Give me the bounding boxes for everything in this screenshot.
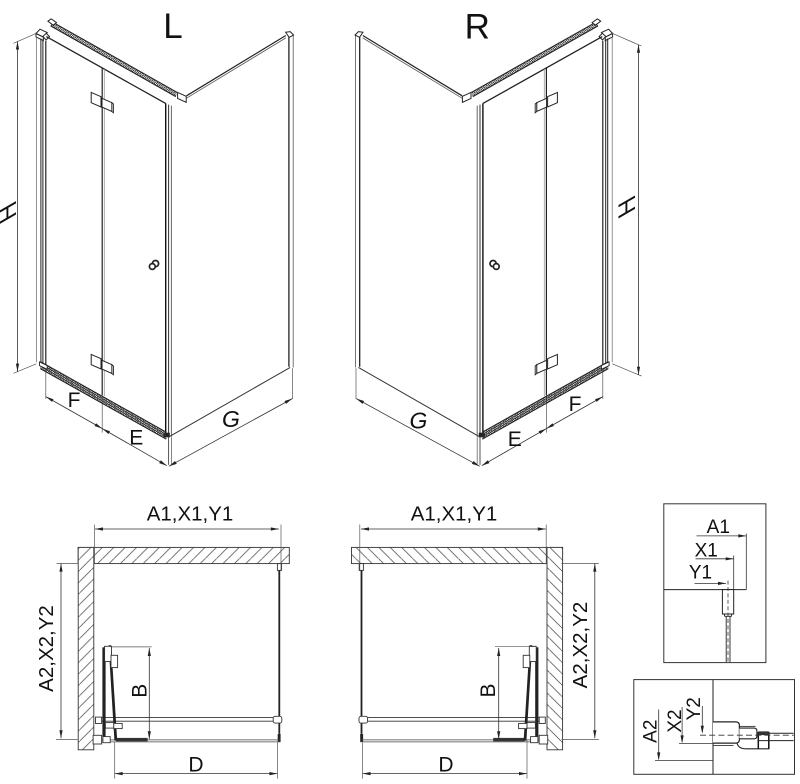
svg-text:A1: A1	[707, 517, 730, 538]
svg-text:Y2: Y2	[684, 697, 705, 720]
svg-text:A2: A2	[640, 720, 661, 743]
svg-text:X1: X1	[695, 541, 718, 562]
svg-text:D: D	[438, 753, 453, 776]
svg-text:D: D	[188, 753, 203, 776]
svg-text:F: F	[68, 389, 81, 412]
svg-text:G: G	[410, 408, 428, 434]
svg-text:R: R	[465, 8, 490, 47]
svg-text:E: E	[129, 426, 143, 449]
svg-text:A2,X2,Y2: A2,X2,Y2	[35, 605, 58, 692]
svg-text:B: B	[477, 683, 500, 697]
svg-text:L: L	[163, 7, 182, 46]
svg-text:A2,X2,Y2: A2,X2,Y2	[569, 602, 592, 689]
svg-text:Y1: Y1	[689, 563, 712, 584]
svg-text:A1,X1,Y1: A1,X1,Y1	[411, 503, 498, 526]
svg-text:E: E	[508, 428, 522, 451]
svg-text:F: F	[569, 393, 582, 416]
svg-text:A1,X1,Y1: A1,X1,Y1	[147, 503, 234, 526]
svg-text:X2: X2	[665, 709, 686, 732]
svg-text:G: G	[222, 406, 240, 432]
svg-text:B: B	[128, 684, 151, 698]
